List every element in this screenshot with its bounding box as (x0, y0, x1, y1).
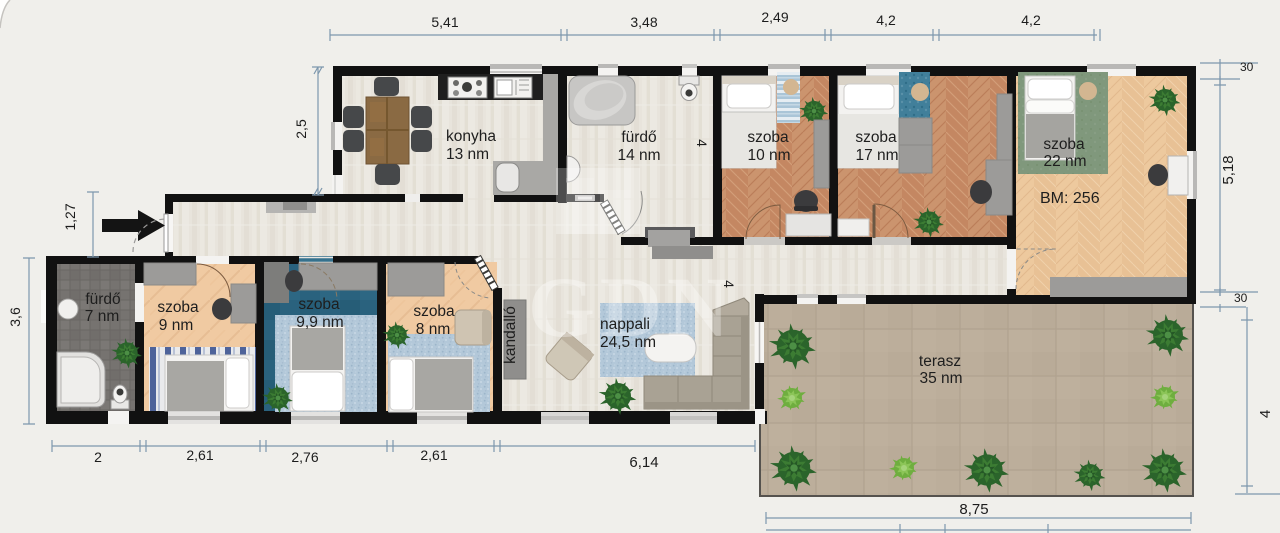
svg-text:30: 30 (1234, 291, 1248, 305)
svg-text:szoba: szoba (157, 299, 199, 316)
svg-text:szoba: szoba (298, 296, 340, 313)
svg-text:fürdő: fürdő (85, 291, 120, 308)
svg-text:2: 2 (94, 449, 102, 465)
svg-text:2,49: 2,49 (761, 9, 788, 25)
svg-text:nappali: nappali (600, 316, 650, 333)
svg-text:2,61: 2,61 (420, 447, 447, 463)
svg-text:4: 4 (694, 139, 710, 147)
svg-text:szoba: szoba (1043, 136, 1085, 153)
svg-text:1,27: 1,27 (62, 203, 78, 230)
svg-text:9 nm: 9 nm (159, 317, 193, 334)
svg-text:24,5 nm: 24,5 nm (600, 334, 656, 351)
svg-text:4,2: 4,2 (1021, 12, 1041, 28)
svg-text:4: 4 (721, 280, 737, 288)
svg-text:17 nm: 17 nm (855, 147, 898, 164)
svg-text:14 nm: 14 nm (617, 147, 660, 164)
svg-text:10 nm: 10 nm (747, 147, 790, 164)
svg-text:szoba: szoba (413, 303, 455, 320)
svg-text:4: 4 (1257, 410, 1274, 418)
svg-text:35 nm: 35 nm (919, 370, 962, 387)
svg-text:5,18: 5,18 (1220, 155, 1237, 184)
svg-text:szoba: szoba (855, 129, 897, 146)
svg-text:30: 30 (1240, 60, 1254, 74)
svg-text:22 nm: 22 nm (1043, 153, 1086, 170)
svg-text:3,6: 3,6 (7, 307, 23, 327)
svg-text:szoba: szoba (747, 129, 789, 146)
svg-text:BM: 256: BM: 256 (1040, 190, 1100, 207)
svg-text:6,14: 6,14 (629, 454, 658, 471)
svg-text:fürdő: fürdő (621, 129, 656, 146)
svg-text:5,41: 5,41 (431, 14, 458, 30)
svg-text:4,2: 4,2 (876, 12, 896, 28)
svg-text:9,9 nm: 9,9 nm (296, 314, 343, 331)
svg-text:7 nm: 7 nm (85, 308, 119, 325)
svg-text:2,5: 2,5 (293, 119, 309, 139)
svg-text:2,61: 2,61 (186, 447, 213, 463)
svg-text:2,76: 2,76 (291, 449, 318, 465)
svg-text:3,48: 3,48 (630, 14, 657, 30)
svg-text:8,75: 8,75 (959, 501, 988, 518)
svg-text:terasz: terasz (919, 353, 961, 370)
svg-text:konyha: konyha (446, 128, 496, 145)
svg-text:13 nm: 13 nm (446, 146, 489, 163)
svg-text:8 nm: 8 nm (416, 321, 450, 338)
svg-text:kandalló: kandalló (502, 306, 519, 364)
